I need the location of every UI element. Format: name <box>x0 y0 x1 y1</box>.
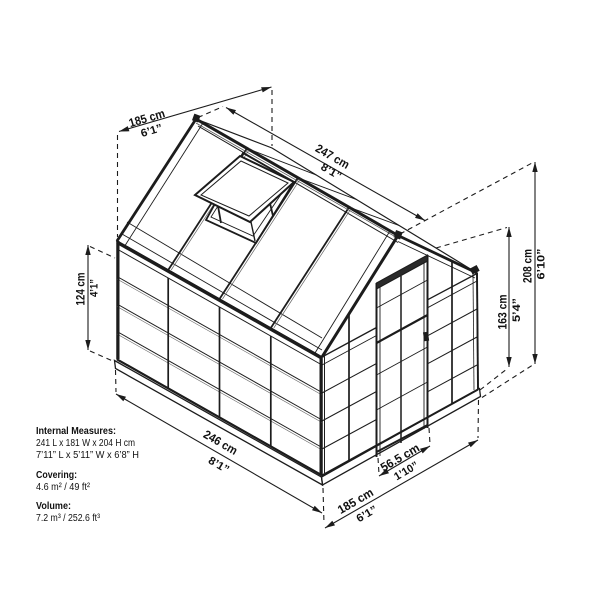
svg-text:7’11” L x 5’11” W x 6’8” H: 7’11” L x 5’11” W x 6’8” H <box>36 450 139 461</box>
svg-text:208 cm: 208 cm <box>521 249 535 283</box>
svg-text:4’1”: 4’1” <box>89 279 101 297</box>
svg-text:Internal Measures:: Internal Measures: <box>36 425 116 437</box>
svg-text:Covering:: Covering: <box>36 469 77 481</box>
svg-text:241 L x 181 W x 204 H cm: 241 L x 181 W x 204 H cm <box>36 438 135 449</box>
svg-text:Volume:: Volume: <box>36 500 71 512</box>
svg-text:6’10”: 6’10” <box>536 249 548 280</box>
svg-text:5’4”: 5’4” <box>511 298 523 322</box>
svg-text:124 cm: 124 cm <box>74 273 88 306</box>
svg-text:163 cm: 163 cm <box>496 295 510 330</box>
svg-text:4.6 m² / 49 ft²: 4.6 m² / 49 ft² <box>36 482 91 493</box>
svg-text:7.2 m³ / 252.6 ft³: 7.2 m³ / 252.6 ft³ <box>36 513 101 524</box>
